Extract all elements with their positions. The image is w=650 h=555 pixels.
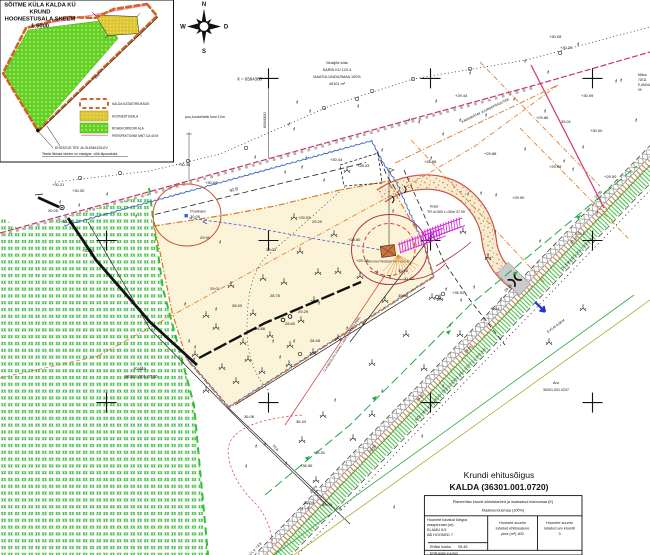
svg-text:SÕITME KÜLA KALDA KÜ: SÕITME KÜLA KALDA KÜ	[4, 2, 75, 9]
svg-text:+30.99: +30.99	[581, 93, 594, 98]
svg-text:+29.30: +29.30	[356, 258, 369, 263]
svg-text:+30.00: +30.00	[590, 128, 603, 133]
svg-text:31.02: 31.02	[404, 276, 415, 281]
svg-text:+30.30: +30.30	[72, 188, 85, 193]
svg-text:Teede liikluse skeem on esialg: Teede liikluse skeem on esialgne, võib t…	[42, 152, 117, 156]
svg-text:Kraav: Kraav	[430, 205, 439, 209]
svg-text:36301.001.0247: 36301.001.0247	[543, 388, 569, 392]
svg-text:30.98: 30.98	[398, 293, 409, 298]
svg-text:+28.43: +28.43	[357, 163, 370, 168]
svg-text:+30.68: +30.68	[205, 180, 218, 185]
svg-text:49101 m²: 49101 m²	[329, 82, 346, 86]
svg-text:REKONSTRUEERITAV HOONE: REKONSTRUEERITAV HOONE	[366, 260, 409, 264]
svg-text:MAATULUNDUSMAA 100%: MAATULUNDUSMAA 100%	[313, 75, 361, 79]
svg-text:+29.86: +29.86	[536, 115, 549, 120]
svg-text:28.75: 28.75	[270, 293, 281, 298]
svg-text:Hoonete suurim: Hoonete suurim	[546, 521, 573, 525]
svg-text:X = 6584300: X = 6584300	[237, 77, 263, 82]
svg-text:+29.03: +29.03	[298, 215, 311, 220]
svg-text:+29.1: +29.1	[575, 232, 585, 236]
svg-text:30.05: 30.05	[48, 208, 59, 213]
svg-text:PERSPEKTIIVNE MNT CA 40 M: PERSPEKTIIVNE MNT CA 40 M	[112, 134, 159, 138]
svg-text:Aru: Aru	[553, 380, 559, 385]
svg-text:KALDA KATASTRIÜKSUS: KALDA KATASTRIÜKSUS	[112, 102, 149, 106]
svg-text:28.60: 28.60	[285, 321, 296, 326]
svg-text:+29.90: +29.90	[512, 195, 525, 200]
svg-text:AB HOONED 7: AB HOONED 7	[427, 533, 453, 537]
svg-text:+29.50: +29.50	[604, 174, 617, 179]
svg-text:6584300: 6584300	[262, 112, 267, 128]
svg-text:1:5000: 1:5000	[31, 24, 49, 30]
svg-text:29.91: 29.91	[200, 235, 211, 240]
svg-text:+29.44: +29.44	[455, 93, 468, 98]
svg-text:36301:001:0720: 36301:001:0720	[124, 374, 158, 379]
svg-text:30.05: 30.05	[190, 214, 201, 219]
svg-text:Planeeritav krundi sihtotstarb: Planeeritav krundi sihtotstarbed ja osak…	[453, 500, 554, 504]
svg-text:28.45: 28.45	[310, 338, 321, 343]
svg-text:+30.36: +30.36	[178, 162, 191, 167]
svg-text:lubatud ehitisealune: lubatud ehitisealune	[496, 527, 530, 531]
svg-text:+29.98: +29.98	[549, 164, 562, 169]
svg-text:30.92: 30.92	[398, 268, 409, 273]
svg-text:EHITATUD TEE JA OLEMASOLEV: EHITATUD TEE JA OLEMASOLEV	[55, 146, 108, 150]
svg-text:+30.08: +30.08	[82, 248, 95, 253]
svg-text:pind (m²) 400: pind (m²) 400	[501, 532, 524, 536]
svg-text:Krundi ehitusõigus: Krundi ehitusõigus	[464, 470, 535, 480]
svg-text:+29.88: +29.88	[484, 151, 497, 156]
svg-text:Ehitisi kokku: Ehitisi kokku	[430, 545, 451, 549]
svg-text:lubatud arv krundil: lubatud arv krundil	[544, 527, 575, 531]
svg-text:S: S	[202, 49, 206, 55]
svg-text:+35.92: +35.92	[452, 290, 465, 295]
svg-text:28.88: 28.88	[255, 326, 266, 331]
svg-text:HOONESTUSALA: HOONESTUSALA	[112, 115, 139, 119]
svg-text:29.29: 29.29	[298, 309, 309, 314]
svg-text:+30.08: +30.08	[549, 34, 562, 39]
svg-text:09: 09	[638, 88, 642, 92]
svg-text:36.03: 36.03	[304, 500, 315, 505]
svg-text:39.01: 39.01	[561, 119, 572, 124]
svg-text:E,AM/UA: E,AM/UA	[638, 83, 650, 87]
svg-text:Hoonete suurim: Hoonete suurim	[499, 521, 526, 525]
svg-text:Puurkaev: Puurkaev	[190, 210, 206, 214]
svg-text:W: W	[180, 25, 186, 31]
svg-text:28.45: 28.45	[458, 545, 468, 549]
svg-text:30.03: 30.03	[322, 502, 333, 507]
svg-text:Maatulundusmaa (100%): Maatulundusmaa (100%)	[482, 509, 525, 513]
svg-text:KALDA (36301.001.0720): KALDA (36301.001.0720)	[450, 482, 549, 492]
svg-text:+35.34: +35.34	[313, 451, 325, 455]
svg-text:28.93: 28.93	[232, 303, 243, 308]
svg-text:SARDI KÜ 123-4: SARDI KÜ 123-4	[323, 68, 352, 72]
svg-text:+30.44: +30.44	[330, 157, 343, 162]
svg-text:Hoonete lubatud kõrgus: Hoonete lubatud kõrgus	[427, 518, 467, 522]
svg-text:36.08: 36.08	[244, 414, 255, 419]
svg-text:Kalda: Kalda	[134, 366, 146, 371]
svg-text:Mustjõe küla: Mustjõe küla	[326, 61, 348, 65]
svg-text:HOONESTUSALA SKEEM: HOONESTUSALA SKEEM	[5, 17, 76, 23]
svg-text:+30.13: +30.13	[60, 219, 73, 224]
svg-text:29.01: 29.01	[210, 286, 221, 291]
svg-text:D: D	[224, 25, 229, 31]
svg-text:+30.30: +30.30	[560, 45, 573, 50]
svg-text:Mõisa: Mõisa	[638, 73, 647, 77]
svg-text:+30.21: +30.21	[52, 182, 65, 187]
svg-text:KRUND: KRUND	[30, 10, 51, 16]
svg-text:+28.98: +28.98	[424, 159, 437, 164]
svg-text:+28.50: +28.50	[348, 237, 361, 242]
svg-text:TR d=300 L=30m 37.90: TR d=300 L=30m 37.90	[427, 210, 465, 214]
svg-text:puu,kuusehekk kuni 10m: puu,kuusehekk kuni 10m	[185, 115, 225, 119]
svg-text:3: 3	[558, 532, 560, 536]
svg-text:Ehitusala suurus: Ehitusala suurus	[430, 552, 458, 555]
svg-text:+36.56: +36.56	[300, 463, 313, 468]
svg-text:36.43: 36.43	[296, 419, 307, 424]
svg-text:29.03: 29.03	[266, 247, 277, 252]
svg-text:72011: 72011	[638, 78, 647, 82]
svg-text:ROHEKORIDORI ALA: ROHEKORIDORI ALA	[112, 127, 145, 131]
svg-text:+29.4: +29.4	[490, 307, 500, 311]
svg-text:ELAMU 8,5: ELAMU 8,5	[427, 528, 446, 532]
svg-text:29.20: 29.20	[312, 219, 323, 224]
svg-text:N: N	[202, 2, 206, 8]
svg-text:maapinnast (m):: maapinnast (m):	[427, 523, 454, 527]
